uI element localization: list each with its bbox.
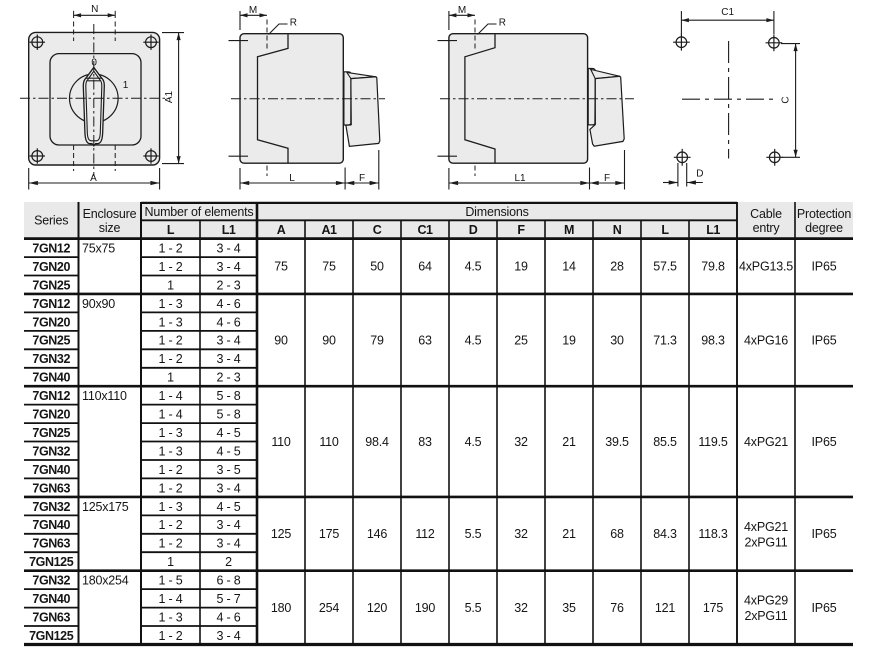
svg-text:C1: C1: [721, 7, 734, 18]
svg-text:1 - 2: 1 - 2: [158, 463, 182, 477]
svg-text:4.5: 4.5: [465, 260, 482, 274]
svg-text:M: M: [564, 223, 574, 237]
svg-text:110x110: 110x110: [82, 389, 127, 403]
svg-text:1 - 3: 1 - 3: [158, 315, 182, 329]
svg-text:112: 112: [415, 527, 435, 541]
svg-text:4 - 5: 4 - 5: [216, 500, 240, 514]
svg-text:7GN40: 7GN40: [32, 463, 70, 477]
svg-text:F: F: [604, 173, 610, 184]
svg-text:7GN25: 7GN25: [32, 334, 70, 348]
svg-text:6 - 8: 6 - 8: [216, 574, 240, 588]
svg-text:63: 63: [418, 334, 432, 348]
svg-text:2xPG11: 2xPG11: [744, 535, 787, 549]
svg-text:90x90: 90x90: [82, 297, 115, 311]
svg-text:64: 64: [418, 260, 432, 274]
svg-text:7GN20: 7GN20: [32, 260, 70, 274]
svg-text:Number of elements: Number of elements: [145, 205, 254, 219]
svg-text:7GN63: 7GN63: [32, 481, 70, 495]
svg-text:1 - 3: 1 - 3: [158, 444, 182, 458]
svg-text:7GN20: 7GN20: [32, 408, 70, 422]
svg-text:19: 19: [514, 260, 528, 274]
svg-text:5.5: 5.5: [465, 601, 482, 615]
svg-text:3 - 4: 3 - 4: [216, 518, 240, 532]
svg-text:F: F: [517, 223, 525, 237]
svg-text:4 - 6: 4 - 6: [216, 315, 240, 329]
svg-text:degree: degree: [805, 221, 843, 235]
svg-text:D: D: [469, 223, 478, 237]
svg-text:28: 28: [610, 260, 624, 274]
svg-text:M: M: [249, 5, 257, 16]
svg-text:A1: A1: [164, 90, 175, 103]
svg-text:Cable: Cable: [750, 207, 782, 221]
svg-text:1 - 2: 1 - 2: [158, 260, 182, 274]
svg-text:1 - 2: 1 - 2: [158, 481, 182, 495]
svg-text:79.8: 79.8: [701, 260, 725, 274]
svg-text:1 - 3: 1 - 3: [158, 426, 182, 440]
svg-text:IP65: IP65: [812, 435, 837, 449]
svg-text:180x254: 180x254: [82, 574, 129, 588]
svg-text:A: A: [90, 173, 97, 184]
svg-text:7GN63: 7GN63: [32, 537, 70, 551]
svg-text:7GN25: 7GN25: [32, 278, 70, 292]
svg-text:R: R: [290, 17, 297, 28]
svg-text:175: 175: [703, 601, 724, 615]
svg-text:A1: A1: [322, 223, 338, 237]
svg-text:110: 110: [271, 435, 291, 449]
svg-text:7GN32: 7GN32: [32, 500, 70, 514]
svg-text:4xPG13.5: 4xPG13.5: [739, 260, 793, 274]
svg-text:7GN12: 7GN12: [32, 297, 70, 311]
svg-text:7GN40: 7GN40: [32, 592, 70, 606]
svg-text:7GN12: 7GN12: [32, 389, 70, 403]
svg-text:1 - 4: 1 - 4: [158, 408, 182, 422]
svg-text:2: 2: [225, 555, 232, 569]
svg-text:1 - 3: 1 - 3: [158, 297, 182, 311]
svg-text:3 - 4: 3 - 4: [216, 260, 240, 274]
svg-text:3 - 4: 3 - 4: [216, 629, 240, 643]
svg-text:L1: L1: [222, 223, 236, 237]
svg-text:1 - 5: 1 - 5: [158, 574, 182, 588]
svg-text:50: 50: [370, 260, 384, 274]
svg-text:2xPG11: 2xPG11: [744, 609, 787, 623]
svg-text:1: 1: [123, 80, 129, 91]
svg-text:1 - 3: 1 - 3: [158, 500, 182, 514]
svg-text:190: 190: [415, 601, 436, 615]
svg-text:32: 32: [514, 435, 528, 449]
svg-text:79: 79: [370, 334, 384, 348]
svg-text:32: 32: [514, 601, 528, 615]
svg-text:7GN32: 7GN32: [32, 574, 70, 588]
svg-text:1 - 3: 1 - 3: [158, 611, 182, 625]
svg-text:25: 25: [514, 334, 528, 348]
svg-text:7GN40: 7GN40: [32, 518, 70, 532]
svg-text:1 - 2: 1 - 2: [158, 537, 182, 551]
svg-text:1 - 2: 1 - 2: [158, 629, 182, 643]
svg-text:A: A: [277, 223, 286, 237]
svg-text:7GN40: 7GN40: [32, 371, 70, 385]
svg-text:68: 68: [610, 527, 624, 541]
svg-text:175: 175: [319, 527, 340, 541]
svg-text:1: 1: [167, 555, 174, 569]
svg-text:14: 14: [562, 260, 576, 274]
svg-text:7GN25: 7GN25: [32, 426, 70, 440]
svg-text:2 - 3: 2 - 3: [216, 371, 240, 385]
svg-text:2 - 3: 2 - 3: [216, 278, 240, 292]
svg-text:R: R: [499, 18, 506, 29]
svg-text:3 - 4: 3 - 4: [216, 242, 240, 256]
svg-text:90: 90: [274, 334, 288, 348]
svg-text:21: 21: [562, 435, 576, 449]
svg-text:7GN125: 7GN125: [29, 555, 74, 569]
svg-text:7GN125: 7GN125: [29, 629, 74, 643]
svg-text:L: L: [289, 173, 295, 184]
svg-text:180: 180: [271, 601, 292, 615]
svg-text:98.3: 98.3: [701, 334, 725, 348]
svg-text:4.5: 4.5: [465, 435, 482, 449]
svg-text:L1: L1: [706, 223, 720, 237]
svg-text:4.5: 4.5: [465, 334, 482, 348]
svg-text:N: N: [613, 223, 622, 237]
svg-text:118.3: 118.3: [698, 527, 728, 541]
svg-text:5 - 8: 5 - 8: [216, 408, 240, 422]
svg-text:L: L: [661, 223, 669, 237]
svg-text:4 - 5: 4 - 5: [216, 444, 240, 458]
svg-text:90: 90: [322, 334, 336, 348]
svg-text:Dimensions: Dimensions: [465, 205, 528, 219]
svg-text:1 - 4: 1 - 4: [158, 389, 182, 403]
svg-text:254: 254: [319, 601, 340, 615]
svg-text:IP65: IP65: [812, 260, 837, 274]
svg-text:84.3: 84.3: [653, 527, 677, 541]
svg-text:M: M: [458, 5, 466, 16]
svg-text:7GN63: 7GN63: [32, 611, 70, 625]
svg-text:1: 1: [167, 371, 174, 385]
svg-text:3 - 4: 3 - 4: [216, 352, 240, 366]
svg-text:IP65: IP65: [812, 527, 837, 541]
svg-text:4xPG29: 4xPG29: [744, 594, 788, 608]
svg-text:3 - 4: 3 - 4: [216, 537, 240, 551]
svg-text:5.5: 5.5: [465, 527, 482, 541]
svg-text:71.3: 71.3: [653, 334, 677, 348]
svg-text:35: 35: [562, 601, 576, 615]
svg-text:Protection: Protection: [797, 207, 852, 221]
svg-text:146: 146: [367, 527, 388, 541]
svg-text:121: 121: [655, 601, 676, 615]
svg-text:L: L: [167, 223, 175, 237]
svg-text:N: N: [91, 4, 98, 15]
svg-text:entry: entry: [753, 221, 781, 235]
svg-text:83: 83: [418, 435, 432, 449]
svg-text:3 - 5: 3 - 5: [216, 463, 240, 477]
svg-text:F: F: [359, 173, 365, 184]
svg-text:19: 19: [562, 334, 576, 348]
svg-text:3 - 4: 3 - 4: [216, 481, 240, 495]
svg-text:57.5: 57.5: [653, 260, 677, 274]
svg-text:1: 1: [167, 278, 174, 292]
svg-text:IP65: IP65: [812, 334, 837, 348]
svg-text:75: 75: [322, 260, 336, 274]
svg-text:75: 75: [274, 260, 288, 274]
svg-text:4 - 6: 4 - 6: [216, 611, 240, 625]
svg-text:1 - 4: 1 - 4: [158, 592, 182, 606]
svg-text:5 - 7: 5 - 7: [216, 592, 240, 606]
svg-text:30: 30: [610, 334, 624, 348]
svg-text:110: 110: [319, 435, 339, 449]
svg-text:L1: L1: [514, 173, 526, 184]
svg-text:98.4: 98.4: [365, 435, 389, 449]
svg-text:7GN32: 7GN32: [32, 352, 70, 366]
svg-text:1 - 2: 1 - 2: [158, 242, 182, 256]
svg-text:7GN20: 7GN20: [32, 315, 70, 329]
svg-text:76: 76: [610, 601, 624, 615]
svg-text:4xPG16: 4xPG16: [744, 334, 788, 348]
svg-text:Series: Series: [34, 214, 68, 228]
svg-text:C: C: [373, 223, 382, 237]
svg-text:21: 21: [562, 527, 576, 541]
svg-text:D: D: [696, 169, 703, 180]
svg-text:125x175: 125x175: [82, 500, 129, 514]
svg-text:1 - 2: 1 - 2: [158, 352, 182, 366]
svg-text:120: 120: [367, 601, 388, 615]
svg-text:5 - 8: 5 - 8: [216, 389, 240, 403]
svg-text:1 - 2: 1 - 2: [158, 334, 182, 348]
svg-text:C: C: [781, 96, 792, 103]
svg-text:size: size: [99, 221, 121, 235]
svg-text:4 - 5: 4 - 5: [216, 426, 240, 440]
svg-text:125: 125: [271, 527, 292, 541]
svg-text:IP65: IP65: [812, 601, 837, 615]
svg-text:4xPG21: 4xPG21: [744, 435, 788, 449]
svg-text:119.5: 119.5: [698, 435, 728, 449]
svg-text:4xPG21: 4xPG21: [744, 520, 788, 534]
svg-text:4 - 6: 4 - 6: [216, 297, 240, 311]
svg-text:Enclosure: Enclosure: [83, 207, 137, 221]
svg-text:32: 32: [514, 527, 528, 541]
svg-text:C1: C1: [418, 223, 434, 237]
svg-text:0: 0: [91, 57, 97, 68]
svg-text:75x75: 75x75: [82, 242, 115, 256]
svg-text:3 - 4: 3 - 4: [216, 334, 240, 348]
svg-text:7GN32: 7GN32: [32, 444, 70, 458]
svg-text:39.5: 39.5: [605, 435, 629, 449]
svg-text:85.5: 85.5: [653, 435, 677, 449]
svg-text:1 - 2: 1 - 2: [158, 518, 182, 532]
svg-text:7GN12: 7GN12: [32, 242, 70, 256]
